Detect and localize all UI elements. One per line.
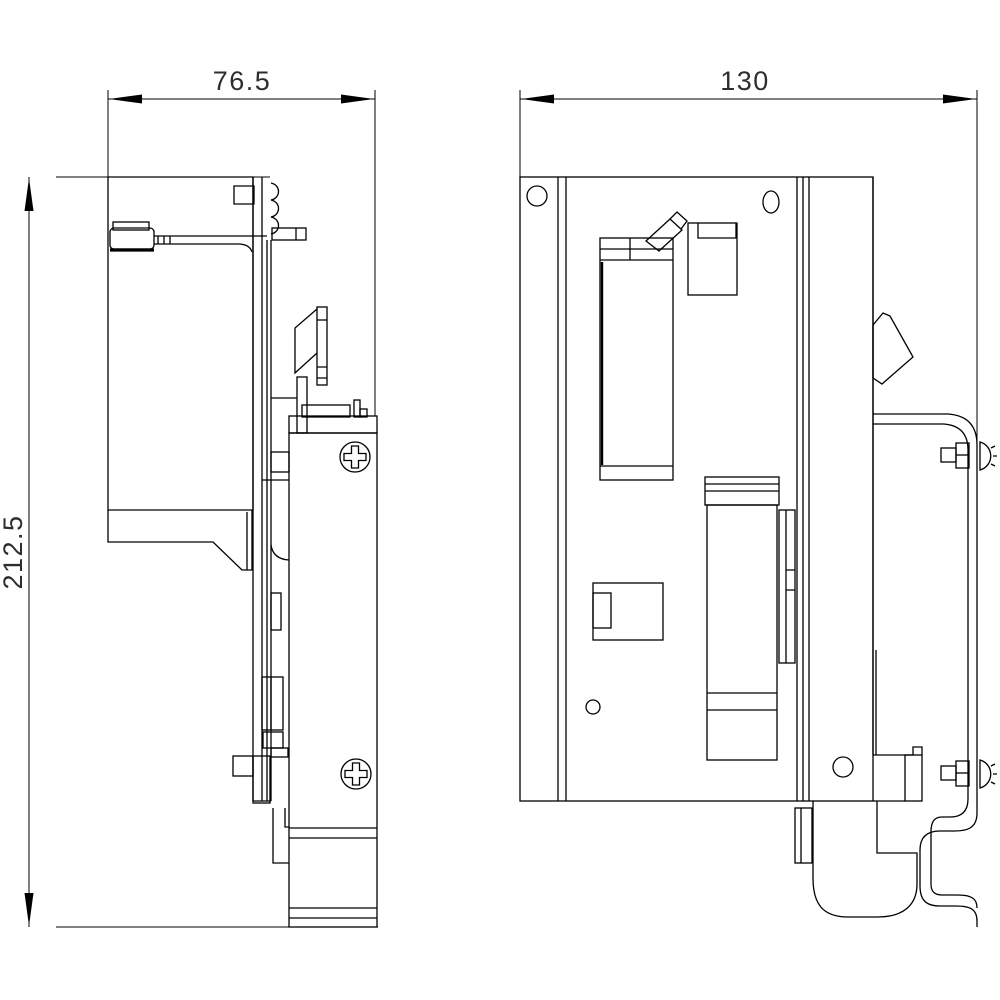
lever-support-arm xyxy=(302,405,350,417)
small-hole xyxy=(586,700,600,714)
rail-top-block xyxy=(234,186,254,204)
small-hole xyxy=(833,757,853,777)
connector-notch xyxy=(593,593,611,628)
bolt-lower xyxy=(941,760,997,788)
actuator-body xyxy=(707,505,777,760)
technical-drawing: 76.5 130 212.5 xyxy=(0,0,1000,1000)
bolt-shaft xyxy=(941,766,956,780)
actuator-strip-lines xyxy=(786,510,795,663)
lever-bar xyxy=(317,307,327,385)
terminal-lever xyxy=(646,219,682,251)
strip-segment xyxy=(271,748,288,757)
dimension-height-overall: 212.5 xyxy=(0,177,378,927)
bolt-dome-head xyxy=(980,760,991,788)
slotted-hole xyxy=(763,191,779,213)
bracket-outer xyxy=(873,414,977,813)
terminal-outline xyxy=(600,238,673,480)
side-tab-lug xyxy=(233,756,253,776)
panel-split-lines-right xyxy=(797,177,809,801)
drawing-canvas: 76.5 130 212.5 xyxy=(0,0,1000,1000)
panel-split-lines-left xyxy=(558,177,566,801)
clip-bar xyxy=(154,236,267,252)
mounting-hole xyxy=(527,186,547,206)
bolt-shaft xyxy=(941,448,956,462)
ledge-block xyxy=(905,755,922,801)
bolt-upper xyxy=(941,442,997,470)
side-housing-outline xyxy=(108,177,253,510)
lever-plate xyxy=(295,309,317,373)
window-upper-right xyxy=(688,223,737,295)
strip-curve xyxy=(271,545,289,560)
ledge-notch xyxy=(913,747,922,755)
strip-segment xyxy=(271,593,281,630)
arrowhead-left xyxy=(521,95,554,104)
bracket-foot-outer xyxy=(920,813,977,927)
actuator-cap-lines xyxy=(705,484,779,491)
din-rail-bracket xyxy=(873,414,977,927)
bracket-foot-inner xyxy=(931,787,977,908)
front-view xyxy=(520,177,997,927)
connector-lower xyxy=(593,583,663,640)
bolt-dome-head xyxy=(980,442,991,470)
hook-side-block xyxy=(795,808,812,863)
front-plate-outline xyxy=(520,177,873,801)
breaker-body xyxy=(289,433,377,927)
connector-outline xyxy=(593,583,663,640)
dimension-value-height: 212.5 xyxy=(0,514,28,589)
strip-segment xyxy=(271,452,289,472)
operating-handle xyxy=(873,313,913,384)
clip-top xyxy=(113,222,149,230)
support-pin xyxy=(354,400,360,417)
actuator-band xyxy=(707,693,777,710)
scalloped-edge xyxy=(271,183,279,234)
bracket-inner xyxy=(873,424,968,787)
arrowhead-right xyxy=(341,95,374,104)
window-notch xyxy=(698,223,736,238)
window-outline xyxy=(688,223,737,295)
actuator-assembly xyxy=(705,477,795,760)
terminal-lines xyxy=(600,249,673,466)
strip-segment xyxy=(263,732,283,748)
bottom-step xyxy=(273,808,289,863)
phillips-screw-bottom xyxy=(341,759,371,789)
arrowhead-left xyxy=(109,95,142,104)
breaker-body-grooves xyxy=(289,828,377,918)
terminal-block-upper xyxy=(600,212,687,480)
dimension-width-front-view: 130 xyxy=(520,66,977,444)
phillips-cross-icon xyxy=(344,446,366,468)
strip-segment xyxy=(262,677,283,730)
side-view xyxy=(108,177,377,927)
bottom-hook xyxy=(813,801,917,917)
clip-bar-segments xyxy=(158,236,170,244)
arrowhead-right xyxy=(943,95,976,104)
actuator-side-strip xyxy=(779,510,795,663)
arrowhead-up xyxy=(25,178,34,211)
bolt-dome-hatch xyxy=(991,764,997,784)
dimension-value-width-side: 76.5 xyxy=(213,66,272,96)
dimension-value-width-front: 130 xyxy=(720,66,770,96)
phillips-cross-icon xyxy=(345,763,367,785)
breaker-cap xyxy=(289,416,377,433)
side-housing-ledge xyxy=(108,510,252,570)
lever-bar-segments xyxy=(317,320,327,378)
arrowhead-down xyxy=(25,893,34,926)
bolt-dome-hatch xyxy=(991,446,997,466)
phillips-screw-top xyxy=(340,442,370,472)
clip-body xyxy=(110,228,154,249)
dimension-width-side-view: 76.5 xyxy=(108,66,375,416)
